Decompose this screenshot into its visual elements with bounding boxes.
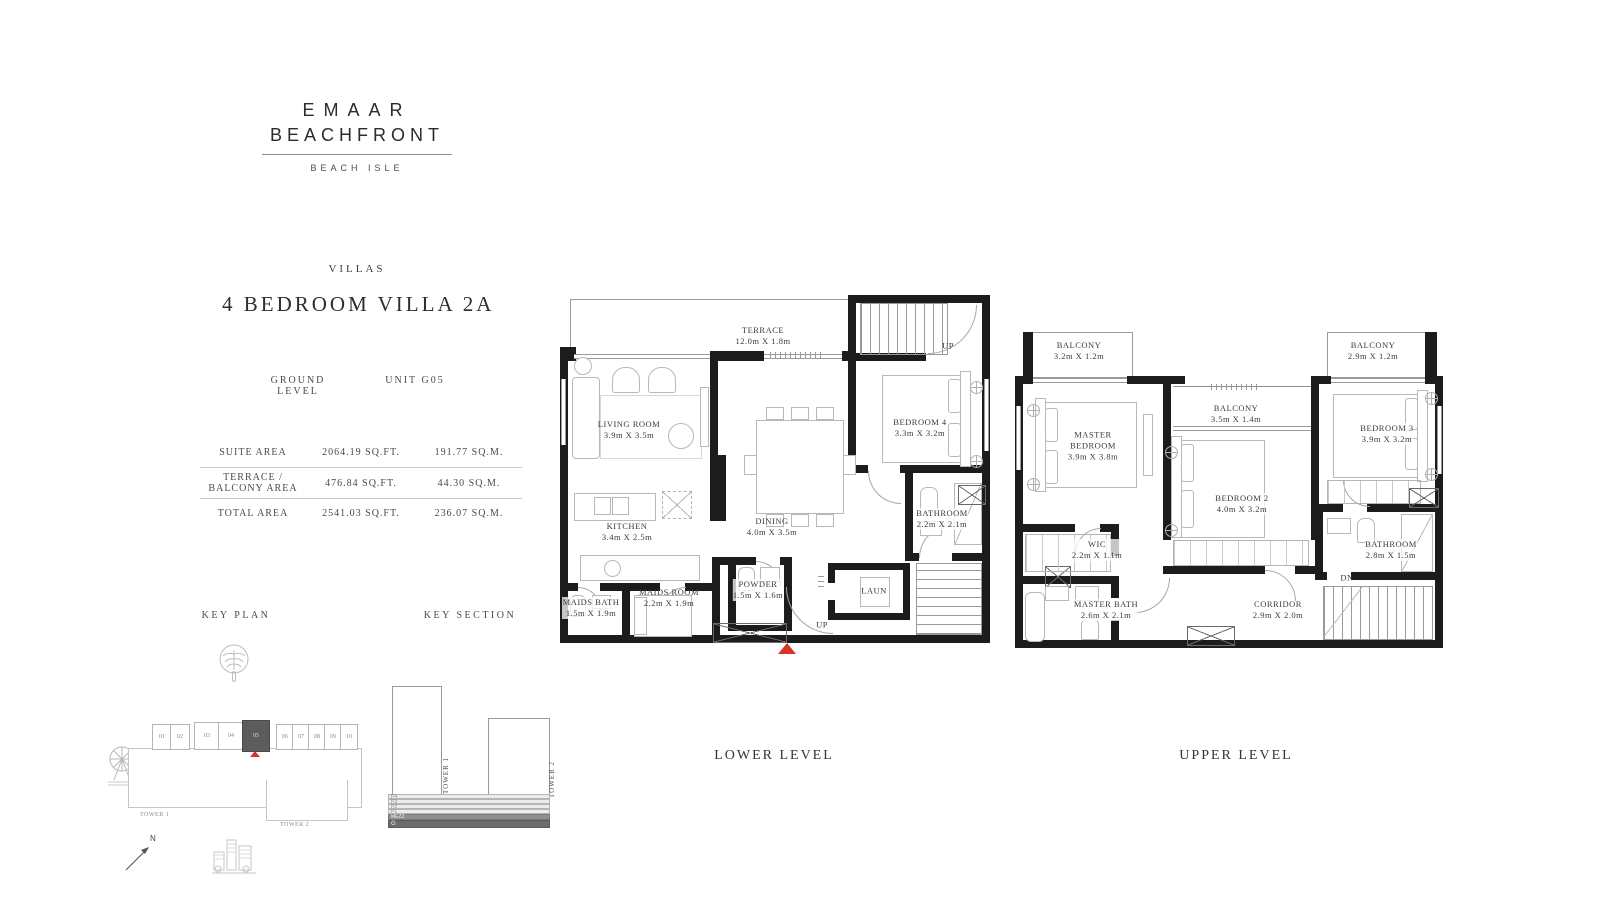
brand-line1: EMAAR	[257, 100, 457, 121]
north-arrow-icon: N	[118, 834, 168, 878]
stairs-dn-label: DN	[1340, 573, 1353, 584]
room-label-bathroom-upper: BATHROOM2.8m X 1.5m	[1365, 539, 1417, 561]
brochure-page: EMAAR BEACHFRONT BEACH ISLE VILLAS 4 BED…	[0, 0, 1600, 900]
key-section-tower1	[392, 686, 442, 796]
north-label: N	[150, 834, 156, 843]
section-level-band-ground: G	[388, 820, 550, 828]
palm-island-icon	[216, 642, 252, 684]
room-label-bedroom2: BEDROOM 24.0m X 3.2m	[1215, 493, 1268, 515]
key-plan-unit: 02	[170, 724, 190, 750]
room-label-maids-bath: MAIDS BATH1.5m X 1.9m	[562, 597, 620, 619]
area-row-sqm: 44.30 SQ.M.	[416, 469, 522, 498]
room-label-living: LIVING ROOM3.9m X 3.5m	[598, 419, 660, 441]
room-label-kitchen: KITCHEN3.4m X 2.5m	[602, 521, 652, 543]
lower-floor-plan: TERRACE 12.0m X 1.8m LIVING ROOM3.9m X 3…	[560, 295, 990, 653]
room-label-maids-room: MAIDS ROOM2.2m X 1.9m	[639, 587, 699, 609]
room-label-terrace: TERRACE 12.0m X 1.8m	[735, 325, 790, 347]
room-label-corridor: CORRIDOR2.9m X 2.0m	[1253, 599, 1303, 621]
area-row-sqm: 236.07 SQ.M.	[416, 499, 522, 528]
stairs-up-label: UP	[942, 341, 954, 352]
key-section-label: KEY SECTION	[415, 610, 525, 621]
area-row-sqft: 2541.03 SQ.FT.	[306, 499, 416, 528]
key-plan-unit-highlighted: 05	[242, 720, 270, 752]
room-label-wic: WIC2.2m X 1.1m	[1072, 539, 1122, 561]
room-label-balcony-tr: BALCONY2.9m X 1.2m	[1348, 340, 1398, 362]
room-label-master-bath: MASTER BATH2.6m X 2.1m	[1074, 599, 1138, 621]
marina-skyline-icon	[210, 836, 258, 878]
table-row: SUITE AREA 2064.19 SQ.FT. 191.77 SQ.M.	[200, 438, 522, 467]
key-plan-unit: 04	[218, 722, 244, 750]
category-label: VILLAS	[257, 263, 457, 275]
area-row-label: TOTAL AREA	[200, 499, 306, 528]
room-label-laundry: LAUN	[861, 586, 887, 597]
tower2-footprint-bump	[266, 780, 348, 821]
key-section-tower1-label: TOWER 1	[442, 732, 450, 794]
lower-level-caption: LOWER LEVEL	[674, 748, 874, 764]
area-row-label: SUITE AREA	[200, 438, 306, 467]
key-plan-unit: 01	[152, 724, 172, 750]
room-label-balcony-center: BALCONY3.5m X 1.4m	[1211, 403, 1261, 425]
room-label-bedroom3: BEDROOM 33.9m X 3.2m	[1360, 423, 1413, 445]
room-label-bathroom: BATHROOM2.2m X 2.1m	[916, 508, 968, 530]
room-label-bedroom4: BEDROOM 43.3m X 3.2m	[893, 417, 946, 439]
brand-logo: EMAAR BEACHFRONT BEACH ISLE	[257, 100, 457, 173]
table-row: TOTAL AREA 2541.03 SQ.FT. 236.07 SQ.M.	[200, 498, 522, 528]
brand-divider	[262, 154, 452, 155]
room-label-dining: DINING4.0m X 3.5m	[747, 516, 797, 538]
stairs-up-label-2: UP	[816, 620, 828, 631]
key-section-drawing: TOWER 1 TOWER 2 P4 P3 P2 P1 MEZZ G	[388, 670, 552, 846]
key-plan-tower1-label: TOWER 1	[140, 812, 169, 818]
brand-line2: BEACHFRONT	[257, 125, 457, 146]
page-title: 4 BEDROOM VILLA 2A	[222, 292, 492, 317]
room-label-master-bedroom: MASTER BEDROOM3.9m X 3.8m	[1060, 430, 1126, 463]
room-label-powder: POWDER1.5m X 1.6m	[733, 579, 783, 601]
key-section-tower2	[488, 718, 550, 796]
key-plan-drawing: 01 02 03 04 05 06 07 08 09 10 TOWER 1 TO…	[100, 690, 400, 840]
area-table: SUITE AREA 2064.19 SQ.FT. 191.77 SQ.M. T…	[200, 438, 522, 528]
area-row-sqft: 476.84 SQ.FT.	[306, 469, 416, 498]
room-label-balcony-tl: BALCONY3.2m X 1.2m	[1054, 340, 1104, 362]
key-plan-unit: 03	[194, 722, 220, 750]
entrance-marker	[778, 643, 796, 654]
key-section-tower2-label: TOWER 2	[548, 748, 556, 798]
key-plan-unit-marker	[250, 751, 260, 757]
key-plan-unit: 10	[340, 724, 358, 750]
key-plan-label: KEY PLAN	[186, 610, 286, 621]
upper-level-caption: UPPER LEVEL	[1136, 748, 1336, 764]
table-row: TERRACE / BALCONY AREA 476.84 SQ.FT. 44.…	[200, 467, 522, 498]
key-plan-tower2-label: TOWER 2	[280, 822, 309, 828]
area-row-sqft: 2064.19 SQ.FT.	[306, 438, 416, 467]
unit-label: UNIT G05	[370, 375, 460, 386]
upper-floor-plan: BALCONY3.2m X 1.2m BALCONY3.5m X 1.4m BA…	[1015, 328, 1443, 648]
area-row-sqm: 191.77 SQ.M.	[416, 438, 522, 467]
brand-subtitle: BEACH ISLE	[257, 163, 457, 173]
level-label: GROUND LEVEL	[248, 375, 348, 397]
area-row-label: TERRACE / BALCONY AREA	[200, 468, 306, 498]
